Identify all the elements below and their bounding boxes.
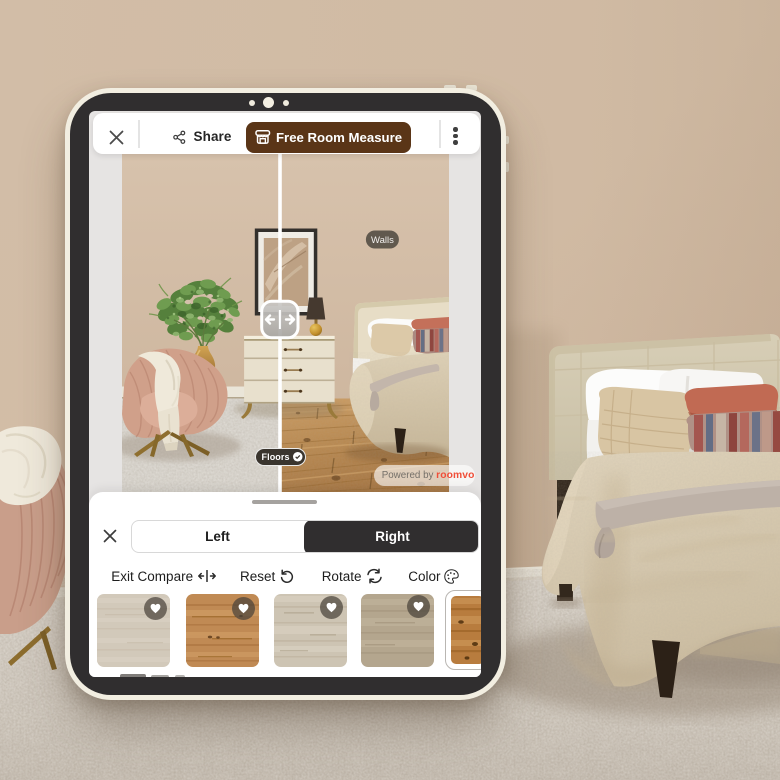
svg-text:Walls: Walls — [371, 235, 394, 246]
